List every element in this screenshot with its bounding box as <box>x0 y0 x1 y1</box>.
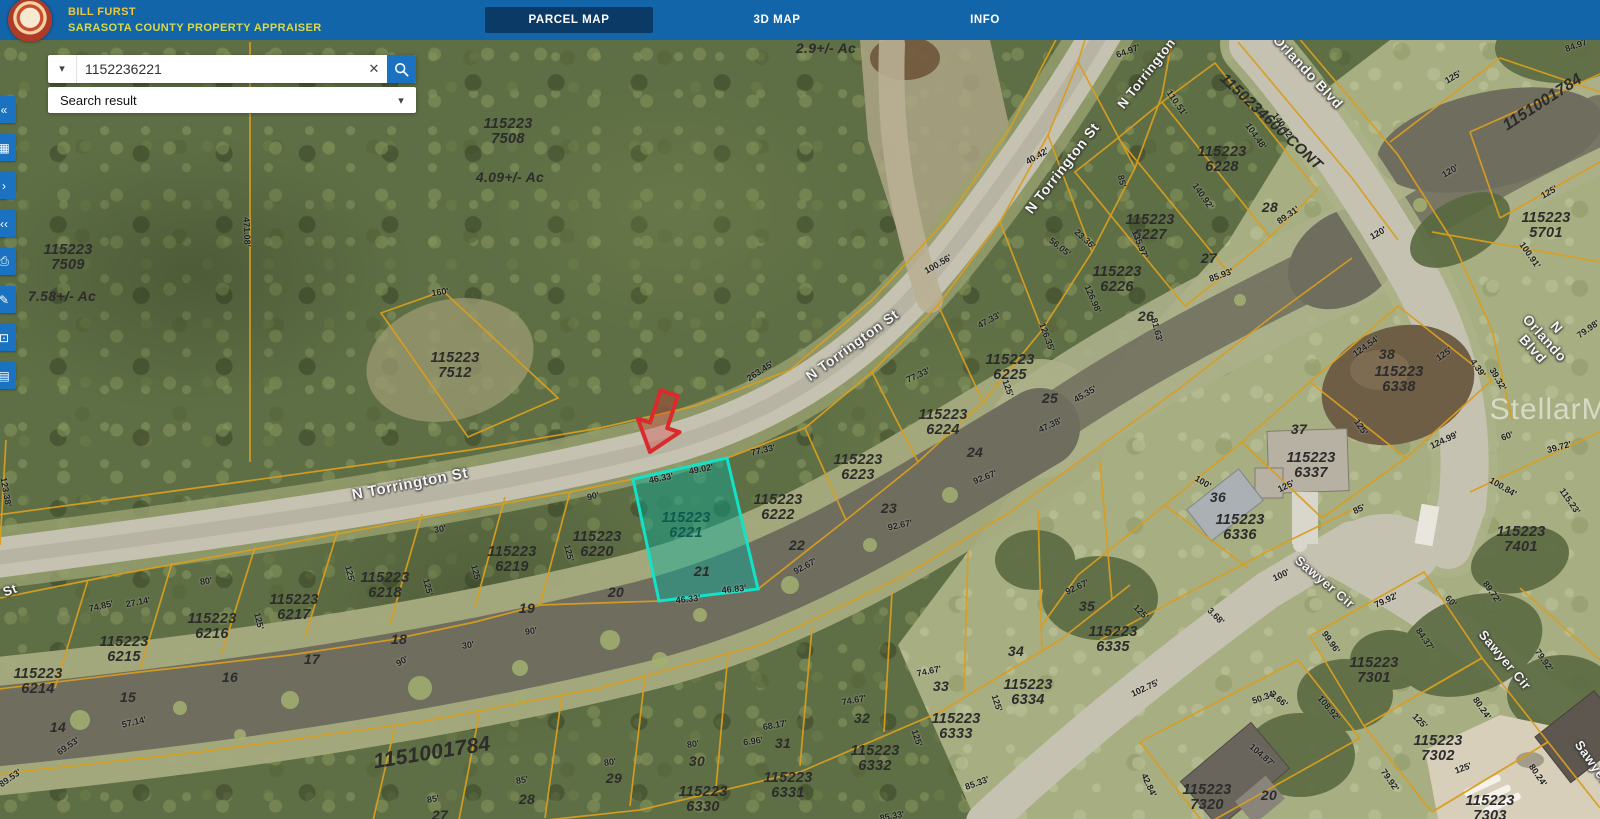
app-title: BILL FURST SARASOTA COUNTY PROPERTY APPR… <box>68 5 322 37</box>
app-header: BILL FURST SARASOTA COUNTY PROPERTY APPR… <box>0 0 1600 40</box>
search-result-dropdown[interactable]: Search result ▾ <box>48 87 416 113</box>
office-name: SARASOTA COUNTY PROPERTY APPRAISER <box>68 21 322 37</box>
clear-search-icon[interactable]: ✕ <box>361 61 387 77</box>
basemap-layers-icon[interactable]: ▦ <box>0 134 16 161</box>
share-icon[interactable]: ‹‹ <box>0 210 16 237</box>
tab-3d-map[interactable]: 3D MAP <box>693 7 861 33</box>
draw-icon[interactable]: ✎ <box>0 286 16 313</box>
expand-icon[interactable]: › <box>0 172 16 199</box>
search-button[interactable] <box>387 55 416 83</box>
magnifier-icon <box>394 62 409 77</box>
search-box: ▾ ✕ <box>48 55 416 83</box>
result-chevron-down-icon: ▾ <box>386 94 416 107</box>
collapse-panel-icon[interactable]: « <box>0 96 16 123</box>
county-seal-logo-icon <box>8 0 52 42</box>
select-icon[interactable]: ⊡ <box>0 324 16 351</box>
appraiser-name: BILL FURST <box>68 5 322 21</box>
search-result-label: Search result <box>48 93 386 108</box>
tab-parcel-map[interactable]: PARCEL MAP <box>485 7 653 33</box>
map-toolbar: «▦›‹‹⎙✎⊡▤ <box>0 96 16 389</box>
app-window: 115223 7508115223 7512115223 7509115223 … <box>0 0 1600 819</box>
print-icon[interactable]: ⎙ <box>0 248 16 275</box>
attribute-table-icon[interactable]: ▤ <box>0 362 16 389</box>
map-canvas[interactable] <box>0 0 1600 819</box>
tab-info[interactable]: INFO <box>901 7 1069 33</box>
search-source-chevron-icon[interactable]: ▾ <box>48 55 77 83</box>
nav-tabs: PARCEL MAP3D MAPINFO <box>485 0 1109 40</box>
search-input[interactable] <box>77 61 361 77</box>
